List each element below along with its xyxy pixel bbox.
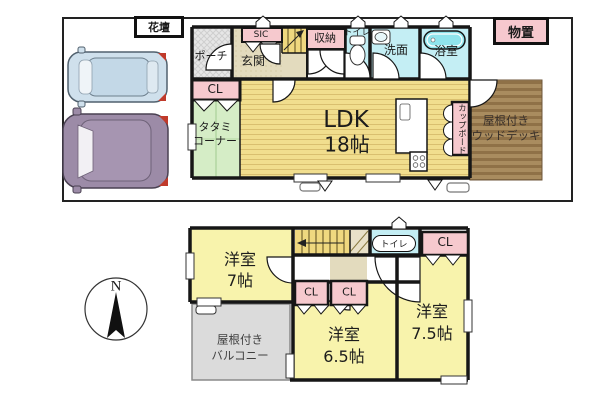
porch-label: ポーチ (195, 51, 228, 64)
car-blue (68, 47, 167, 107)
vent-marks-2f (392, 217, 406, 229)
sic-label: SIC (254, 30, 269, 40)
car-purple (63, 108, 168, 193)
storage-shed-label: 物置 (493, 17, 549, 45)
closet1-label: CL (207, 83, 222, 97)
hall-area (282, 53, 307, 79)
ldk-label-1: LDK (323, 107, 369, 133)
balcony-label-2: バルコニー (211, 349, 268, 362)
wood-deck-label-2: ウッドデッキ (472, 129, 541, 142)
ldk-label-2: 18帖 (324, 134, 369, 157)
room7-label-2: 7帖 (227, 272, 253, 290)
room65-label-1: 洋室 (328, 326, 360, 344)
storage-label: 収納 (314, 33, 336, 46)
toilet2-text: トイレ (380, 237, 407, 250)
balcony-label-1: 屋根付き (217, 333, 263, 346)
compass-north-label: N (111, 278, 122, 295)
bathroom-label: 浴室 (434, 45, 458, 59)
entrance-label: 玄関 (241, 55, 265, 69)
room75-label-1: 洋室 (416, 303, 448, 321)
cupboard-label: カップボード (456, 104, 466, 155)
tatami-label-2: コーナー (193, 136, 237, 149)
closet2b-label: CL (342, 287, 356, 300)
closet2a-label: CL (304, 287, 318, 300)
room7-label-1: 洋室 (224, 251, 256, 269)
flower-bed-label: 花壇 (134, 16, 184, 38)
floor-plan: 花壇 物置 ポーチ 玄関 SIC 収納 トイレ 洗面 浴室 CL タタミ コーナ… (0, 0, 600, 403)
toilet1-label: トイレ (343, 28, 370, 38)
floor-plan-canvas (0, 0, 600, 403)
tatami-label-1: タタミ (199, 122, 232, 135)
washbasin-fixture (372, 30, 390, 44)
washroom-label: 洗面 (384, 44, 408, 58)
room65-label-2: 6.5帖 (323, 348, 364, 366)
wood-deck-label-1: 屋根付き (483, 114, 529, 127)
closet2c-label: CL (437, 236, 452, 250)
storage-shed-text: 物置 (508, 22, 534, 41)
room75-label-2: 7.5帖 (411, 325, 452, 343)
flower-bed-text: 花壇 (148, 19, 170, 35)
toilet2-label: トイレ (372, 235, 416, 252)
toilet1-fixture (350, 36, 365, 65)
